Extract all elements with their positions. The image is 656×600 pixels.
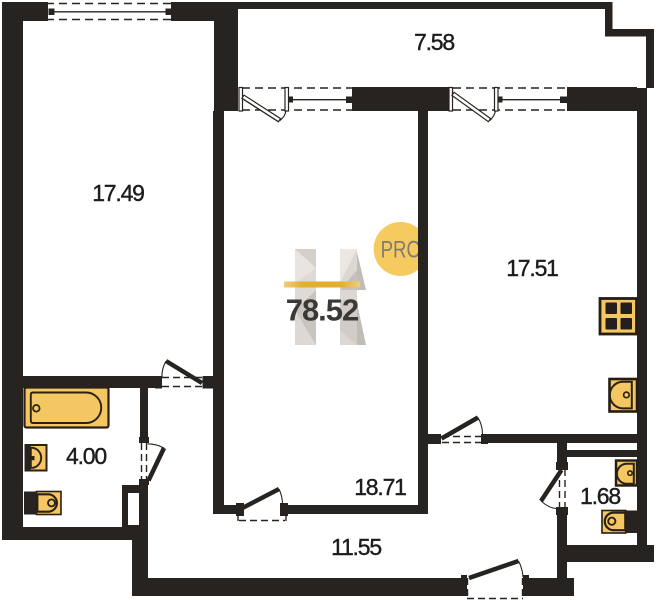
svg-text:17.51: 17.51 — [506, 255, 558, 281]
svg-text:18.71: 18.71 — [354, 474, 406, 500]
svg-text:PRO: PRO — [381, 235, 421, 263]
svg-text:11.55: 11.55 — [331, 534, 381, 560]
svg-text:1.68: 1.68 — [580, 483, 620, 509]
svg-text:78.52: 78.52 — [286, 293, 359, 328]
svg-text:17.49: 17.49 — [92, 180, 144, 206]
svg-text:4.00: 4.00 — [66, 443, 106, 469]
svg-text:7.58: 7.58 — [414, 29, 454, 55]
